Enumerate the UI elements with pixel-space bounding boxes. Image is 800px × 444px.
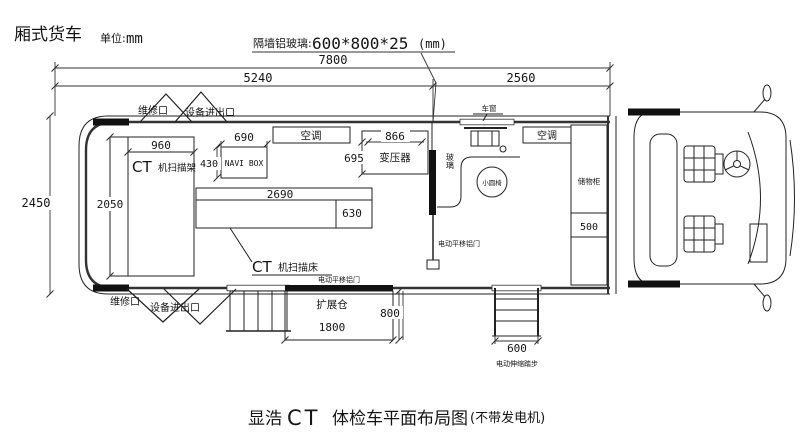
dim-bed-width: 630 xyxy=(342,207,362,220)
dim-navi-depth: 430 xyxy=(200,159,218,170)
dim-expansion-length: 1800 xyxy=(319,321,346,334)
driver-seat xyxy=(684,146,723,182)
drawing-title-suffix: (不带发电机) xyxy=(470,410,545,426)
ct-vehicle-floorplan: 厢式货车 单位: mm 隔墙铝玻璃: 600*800*25 (mm) 7800 … xyxy=(0,0,800,444)
cab-console xyxy=(750,224,767,262)
dim-ct-room-width: 960 xyxy=(151,139,171,152)
dim-navi-width: 690 xyxy=(234,131,254,144)
rear-wheel-bottom xyxy=(93,285,129,292)
operator-room xyxy=(437,114,607,285)
passenger-seat xyxy=(684,216,723,252)
dim-transformer-depth: 695 xyxy=(344,152,364,165)
telescopic-steps-label: 电动伸缩踏步 xyxy=(496,359,538,368)
mirror-top xyxy=(763,85,771,101)
vehicle-type-label: 厢式货车 xyxy=(14,25,82,45)
ct-bed-name: 机扫描床 xyxy=(278,261,318,274)
dim-bed-length: 2690 xyxy=(267,188,294,201)
rear-wheel-top xyxy=(93,119,129,126)
unit-label: 单位: xyxy=(100,31,126,45)
mirror-bottom xyxy=(763,295,771,311)
front-wheel-top xyxy=(628,109,680,116)
telescopic-steps xyxy=(492,288,541,336)
console-desk xyxy=(464,128,507,152)
maintenance-top-label-2: 设备进出口 xyxy=(185,106,235,119)
expansion-bay-label: 扩展仓 xyxy=(316,298,348,311)
partition-glass xyxy=(429,150,436,215)
ct-bed xyxy=(196,188,372,275)
dim-steps-width: 600 xyxy=(507,342,527,355)
front-wheel-bottom xyxy=(628,281,680,288)
mirror-arms xyxy=(754,99,765,297)
floorplan-drawing: 厢式货车 单位: mm 隔墙铝玻璃: 600*800*25 (mm) 7800 … xyxy=(0,0,800,444)
ct-scanner-name: 机扫描架 xyxy=(158,162,197,174)
front-bumper xyxy=(790,140,795,256)
drawing-title-ct: CT xyxy=(287,406,321,430)
steps-door-opening xyxy=(492,285,541,291)
ct-scanner-ct: CT xyxy=(132,158,152,176)
dim-box-length: 5240 xyxy=(244,71,273,85)
navi-box-label: NAVI BOX xyxy=(225,159,264,168)
storage-cabinet xyxy=(571,125,607,285)
dim-cab-length: 2560 xyxy=(507,71,536,85)
sliding-door-bottom-panel xyxy=(285,285,393,291)
glass-label: 玻璃 xyxy=(446,152,455,170)
steering-wheel xyxy=(724,151,750,177)
dim-cabinet-depth: 500 xyxy=(580,222,598,233)
ac-mid-label: 空调 xyxy=(301,129,322,142)
dim-transformer-width: 866 xyxy=(385,130,405,143)
stool-label: 小圆椅 xyxy=(482,178,502,187)
sliding-door-bottom-label: 电动平移铝门 xyxy=(318,275,360,284)
cab-outline xyxy=(634,112,786,284)
maintenance-bottom-label-1: 维修口 xyxy=(110,295,140,308)
unit-value: mm xyxy=(126,31,143,47)
dim-ct-room-depth: 2050 xyxy=(97,198,124,211)
cabinet-label: 储物柜 xyxy=(578,176,601,186)
dim-total-length: 7800 xyxy=(319,53,348,67)
maintenance-top-label-1: 维修口 xyxy=(138,104,168,117)
drawing-title-prefix: 显浩 xyxy=(248,409,282,429)
partition-note-leader xyxy=(252,52,455,122)
dim-expansion-depth: 800 xyxy=(380,307,400,320)
sliding-door-mid-label: 电动平移铝门 xyxy=(438,239,480,248)
ac-right-label: 空调 xyxy=(537,129,557,142)
maintenance-bottom-label-2: 设备进出口 xyxy=(150,301,200,314)
partition-note-unit: (mm) xyxy=(418,37,447,51)
dim-body-width: 2450 xyxy=(22,196,51,210)
window-label: 车窗 xyxy=(482,103,497,113)
ladder-door-opening xyxy=(227,285,289,291)
transformer-label: 变压器 xyxy=(379,151,411,164)
side-ladder xyxy=(226,291,291,331)
partition-note-value: 600*800*25 xyxy=(312,34,408,53)
window-opening xyxy=(460,119,514,125)
rear-bench xyxy=(650,134,677,266)
truck-cab xyxy=(616,85,795,311)
partition-note-label: 隔墙铝玻璃: xyxy=(253,36,312,50)
drawing-title-main: 体检车平面布局图 xyxy=(332,409,468,429)
ct-bed-ct: CT xyxy=(252,258,272,276)
